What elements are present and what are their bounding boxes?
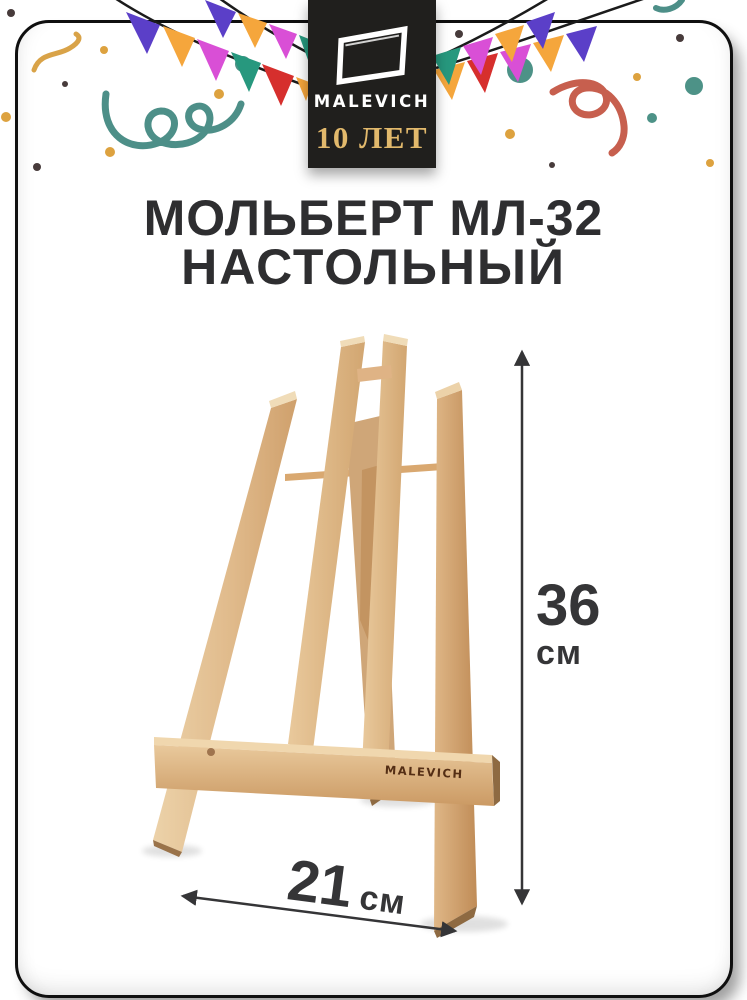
height-unit: см <box>536 636 601 670</box>
anniversary-badge: 10 ЛЕТ <box>316 120 428 156</box>
product-title: МОЛЬБЕРТ МЛ-32 НАСТОЛЬНЫЙ <box>0 194 747 292</box>
malevich-frame-icon <box>328 24 415 88</box>
height-value: 36 <box>536 578 601 634</box>
brand-logo-box: MALEVICH 10 ЛЕТ <box>308 0 436 168</box>
squiggle-teal-arc-icon <box>656 0 682 10</box>
product-promo-image: MALEVICH 10 ЛЕТ МОЛЬБЕРТ МЛ-32 НАСТОЛЬНЫ… <box>0 0 747 1000</box>
product-title-line1: МОЛЬБЕРТ МЛ-32 <box>0 194 747 243</box>
width-unit: см <box>357 879 408 924</box>
height-dimension-label: 36 см <box>536 578 601 670</box>
product-title-line2: НАСТОЛЬНЫЙ <box>0 243 747 292</box>
brand-name: MALEVICH <box>314 92 431 111</box>
width-value: 21 <box>284 846 357 921</box>
